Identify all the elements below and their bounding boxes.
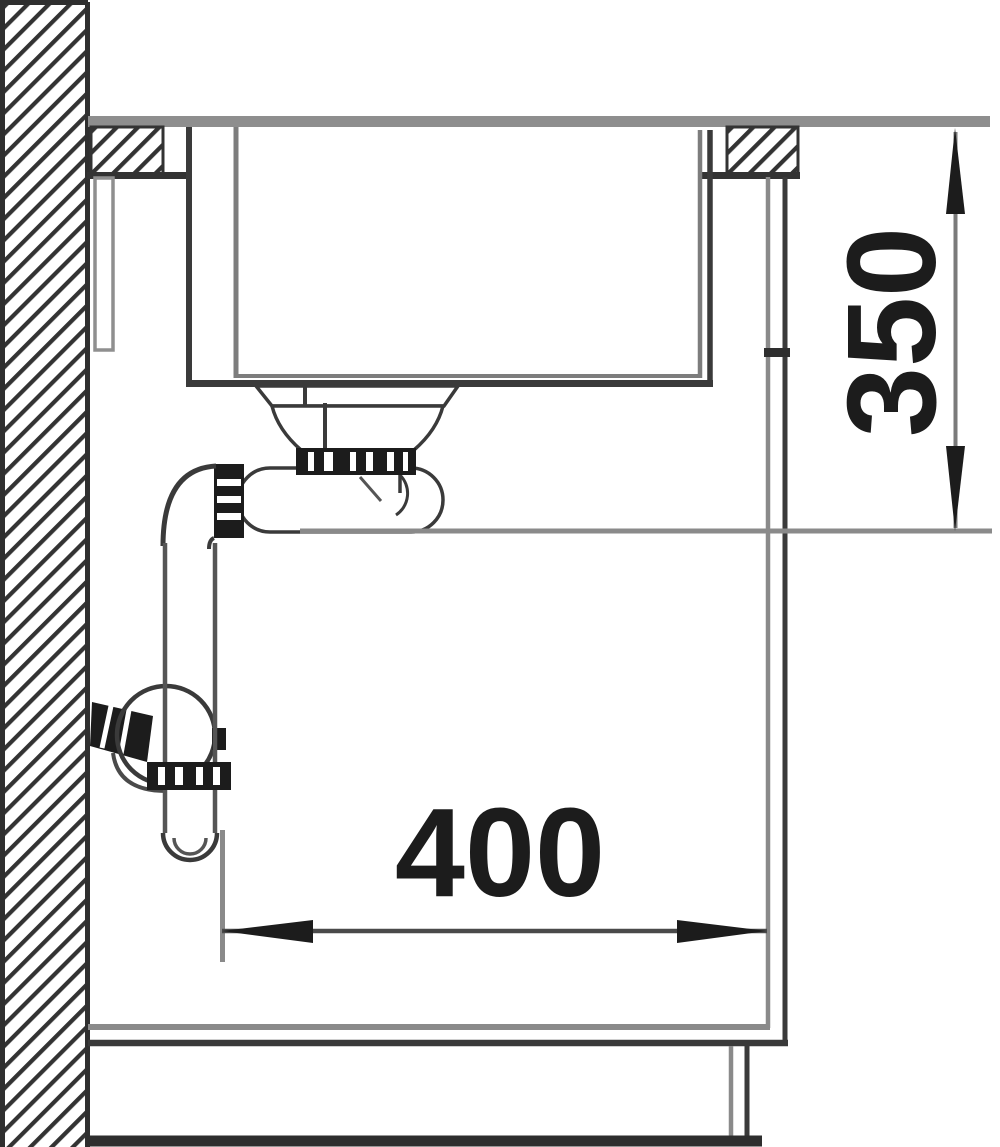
sink-basin — [186, 127, 713, 386]
countertop — [87, 116, 990, 176]
dim400-arrow-right — [677, 920, 767, 943]
pipe-coupling — [147, 762, 231, 790]
wall-batten — [95, 178, 113, 350]
trap-inlet-coupling — [214, 464, 244, 538]
countertop-right-block — [727, 127, 798, 175]
dimension-label-350: 350 — [829, 214, 955, 450]
wall-hatching — [2, 2, 88, 1147]
trap-elbow-outer — [163, 466, 216, 546]
dim350-arrow-up — [946, 128, 965, 214]
sink-mounting-clip — [764, 348, 790, 357]
trap-body — [238, 468, 443, 532]
diagram-canvas: 400 350 — [0, 0, 1000, 1147]
strainer-flange — [256, 381, 458, 475]
strainer-nut — [296, 448, 416, 475]
strainer-funnel — [272, 406, 443, 450]
technical-drawing — [0, 0, 1000, 1147]
dim400-arrow-left — [222, 920, 313, 943]
countertop-left-block — [91, 127, 163, 175]
dim350-arrow-down — [946, 446, 965, 531]
drain-pipe-fill — [163, 543, 217, 860]
dimension-label-400: 400 — [382, 790, 618, 916]
countertop-surface — [88, 116, 990, 127]
wall-section — [2, 2, 88, 1147]
